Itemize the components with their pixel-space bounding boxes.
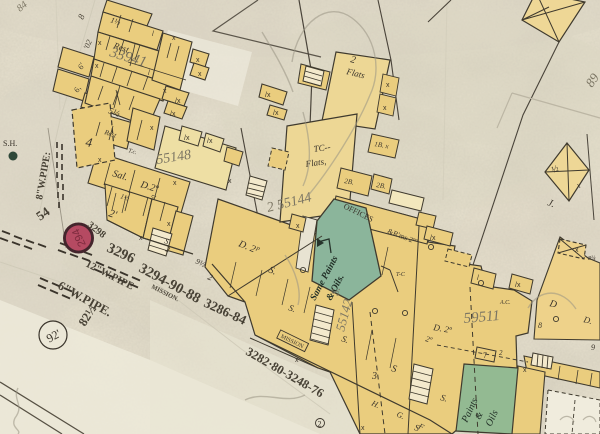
svg-text:x: x <box>196 57 200 64</box>
svg-text:x: x <box>173 180 177 187</box>
svg-text:/x: /x <box>273 110 279 117</box>
svg-text:x: x <box>163 88 167 95</box>
svg-text:/: / <box>152 31 154 38</box>
svg-text:x: x <box>523 367 527 374</box>
svg-text:/x: /x <box>175 98 181 105</box>
svg-text:2: 2 <box>499 349 503 357</box>
svg-text:x: x <box>98 40 102 47</box>
svg-text:x: x <box>575 247 579 254</box>
svg-text:x: x <box>295 357 299 364</box>
svg-text:x: x <box>383 105 387 112</box>
svg-text:7: 7 <box>483 351 487 360</box>
svg-text:/: / <box>148 70 150 77</box>
svg-text:/x: /x <box>515 282 521 289</box>
svg-text:x: x <box>139 235 143 242</box>
svg-text:x: x <box>296 223 300 230</box>
svg-text:/x: /x <box>184 135 190 142</box>
svg-text:S.H.: S.H. <box>3 139 17 148</box>
svg-text:x: x <box>198 71 202 78</box>
svg-text:x: x <box>167 221 171 228</box>
svg-text:8¼: 8¼ <box>588 256 596 262</box>
svg-text:x: x <box>228 178 232 185</box>
svg-text:x: x <box>98 157 102 164</box>
svg-text:9: 9 <box>591 343 595 352</box>
svg-text:/x: /x <box>430 235 436 242</box>
svg-text:x: x <box>577 183 581 190</box>
svg-text:A.C.: A.C. <box>499 300 511 306</box>
svg-text:8: 8 <box>538 321 542 330</box>
svg-text:T-C: T-C <box>396 272 406 278</box>
svg-text:2: 2 <box>318 420 322 429</box>
svg-text:2B.: 2B. <box>344 177 355 187</box>
svg-text:x: x <box>361 425 365 432</box>
svg-text:/x: /x <box>265 92 271 99</box>
svg-text:x: x <box>172 35 176 42</box>
svg-text:x: x <box>95 63 99 70</box>
svg-text:2B.: 2B. <box>376 181 387 191</box>
svg-text:/: / <box>477 275 479 282</box>
svg-text:x: x <box>150 125 154 132</box>
svg-text:/x: /x <box>170 111 176 118</box>
svg-text:3: 3 <box>371 371 377 382</box>
svg-text:/x: /x <box>207 138 213 145</box>
svg-text:59511: 59511 <box>463 308 501 327</box>
svg-text:x: x <box>386 82 390 89</box>
